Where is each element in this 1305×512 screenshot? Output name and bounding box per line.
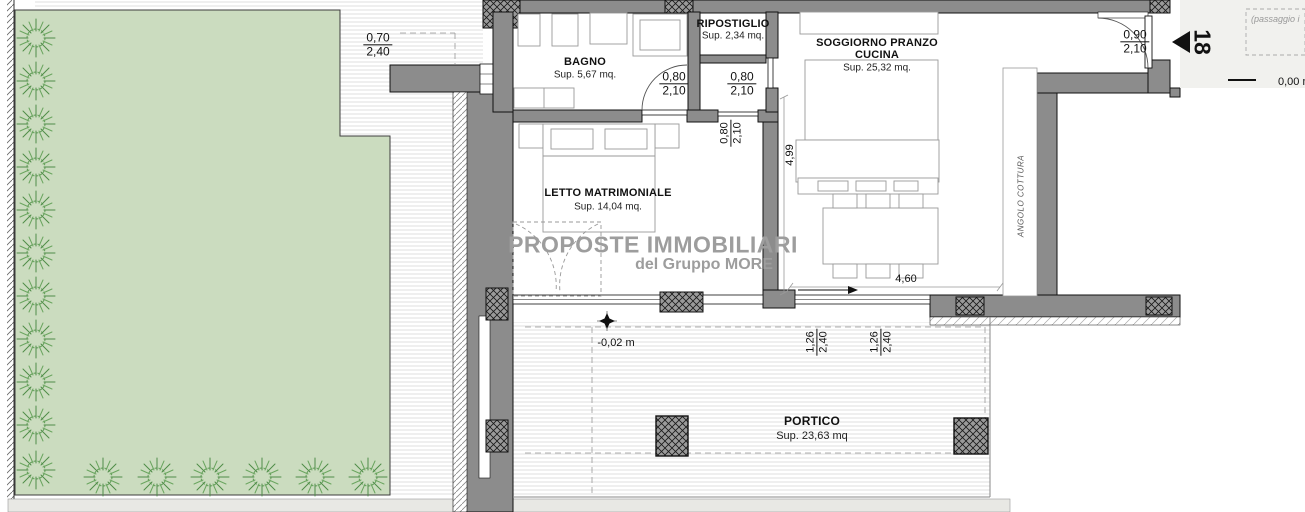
portico-floor: [513, 300, 990, 497]
dim-window-west: 0,70 2,40: [363, 31, 392, 58]
dim-portico-right: 1,26 2,40: [868, 328, 893, 355]
room-area-ripostiglio: Sup. 2,34 mq.: [702, 31, 764, 42]
dim-portico-left: 1,26 2,40: [804, 328, 829, 355]
watermark-line1: PROPOSTE IMMOBILIARI: [508, 232, 798, 259]
pillar: [956, 297, 984, 315]
south-wall-sill: [930, 317, 1180, 325]
door-letto: [718, 112, 758, 116]
passage-note: (passaggio i: [1251, 14, 1300, 24]
pillar: [660, 292, 703, 312]
tv-cabinet: [800, 12, 938, 34]
portico-pillar: [656, 416, 688, 456]
garden-area: [15, 10, 390, 495]
pillar: [1146, 297, 1172, 315]
room-label-bagno: BAGNO: [564, 56, 606, 68]
pillar: [665, 0, 693, 13]
dim-door-letto: 0,80 2,10: [718, 119, 743, 146]
room-area-soggiorno: Sup. 25,32 mq.: [843, 63, 911, 74]
north-wall: [483, 0, 1170, 13]
room-area-portico: Sup. 23,63 mq: [776, 430, 848, 442]
room-label-portico: PORTICO: [784, 414, 840, 428]
nightstand: [655, 124, 679, 148]
level-entrance: 0,00 m: [1278, 76, 1305, 88]
floor-plan: BAGNO Sup. 5,67 mq. RIPOSTIGLIO Sup. 2,3…: [0, 0, 1305, 512]
dim-window-width: 4,60: [895, 273, 916, 285]
dim-door-bagno: 0,80 2,10: [659, 70, 688, 97]
room-area-letto: Sup. 14,04 mq.: [574, 202, 642, 213]
room-label-letto: LETTO MATRIMONIALE: [544, 187, 671, 199]
chair: [833, 194, 857, 208]
room-label-soggiorno: SOGGIORNO PRANZO: [816, 37, 938, 49]
nightstand: [519, 124, 543, 148]
portico-pillar: [954, 418, 988, 454]
chair: [866, 194, 890, 208]
room-area-bagno: Sup. 5,67 mq.: [554, 70, 616, 81]
pillar: [1150, 0, 1170, 13]
level-portico: -0,02 m: [597, 337, 634, 349]
dim-door-ripostiglio: 0,80 2,10: [727, 70, 756, 97]
unit-number: 18: [1189, 29, 1216, 55]
chair: [866, 264, 890, 278]
dim-door-entrance: 0,90 2,10: [1120, 28, 1149, 55]
property-boundary-line: [7, 0, 14, 500]
window-west: [480, 64, 493, 94]
watermark-line2: del Gruppo MORE: [635, 256, 773, 274]
windows-south: [513, 295, 930, 304]
dining-table: [823, 208, 938, 264]
room-label-ripostiglio: RIPOSTIGLIO: [696, 18, 769, 30]
sofa-seats: [796, 140, 939, 182]
door-ripostiglio: [768, 58, 773, 88]
dim-soggiorno-depth: 4,99: [784, 144, 796, 165]
chair: [833, 264, 857, 278]
room-label-angolo-cottura: ANGOLO COTTURA: [1017, 155, 1026, 237]
room-label-soggiorno-2: CUCINA: [855, 49, 899, 61]
bedroom-furniture: [519, 124, 679, 232]
chair: [899, 194, 923, 208]
